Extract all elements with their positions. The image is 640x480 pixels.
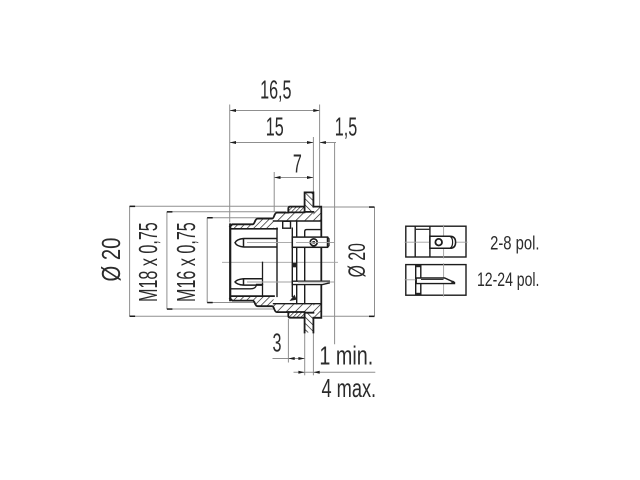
svg-text:M18 x 0,75: M18 x 0,75 (133, 222, 163, 302)
svg-text:3: 3 (273, 328, 282, 358)
svg-text:2-8 pol.: 2-8 pol. (490, 233, 539, 254)
svg-text:16,5: 16,5 (260, 75, 291, 105)
svg-text:4 max.: 4 max. (321, 374, 376, 403)
svg-text:1,5: 1,5 (335, 111, 357, 141)
svg-text:Ø 20: Ø 20 (345, 243, 371, 277)
svg-text:12-24 pol.: 12-24 pol. (477, 269, 540, 291)
svg-text:1 min.: 1 min. (319, 341, 373, 370)
svg-text:M16 x 0,75: M16 x 0,75 (171, 222, 201, 302)
svg-text:15: 15 (266, 111, 284, 141)
svg-text:Ø 20: Ø 20 (96, 238, 125, 282)
svg-text:7: 7 (293, 148, 302, 178)
